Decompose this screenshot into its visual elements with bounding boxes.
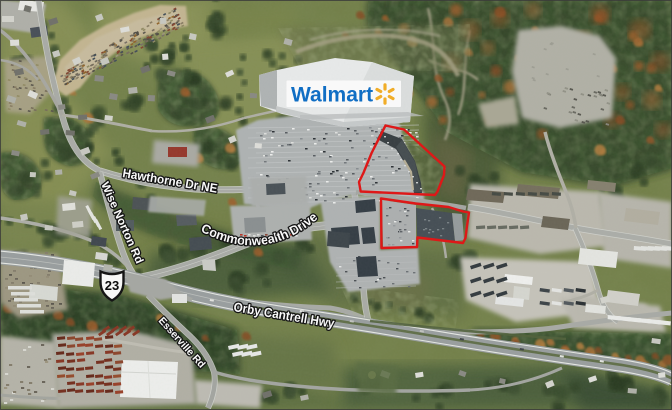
svg-text:Walmart: Walmart	[291, 84, 373, 107]
svg-text:23: 23	[105, 278, 119, 293]
